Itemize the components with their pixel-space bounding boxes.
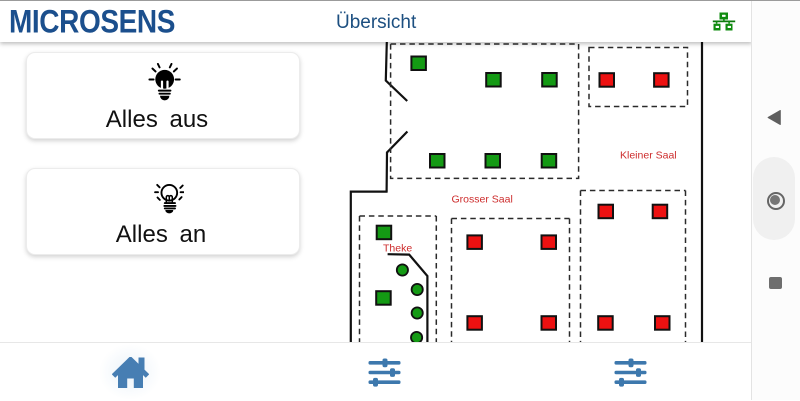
svg-text:Theke: Theke: [383, 243, 412, 255]
svg-text:Kleiner Saal: Kleiner Saal: [620, 150, 677, 162]
svg-text:Grosser Saal: Grosser Saal: [452, 194, 513, 206]
